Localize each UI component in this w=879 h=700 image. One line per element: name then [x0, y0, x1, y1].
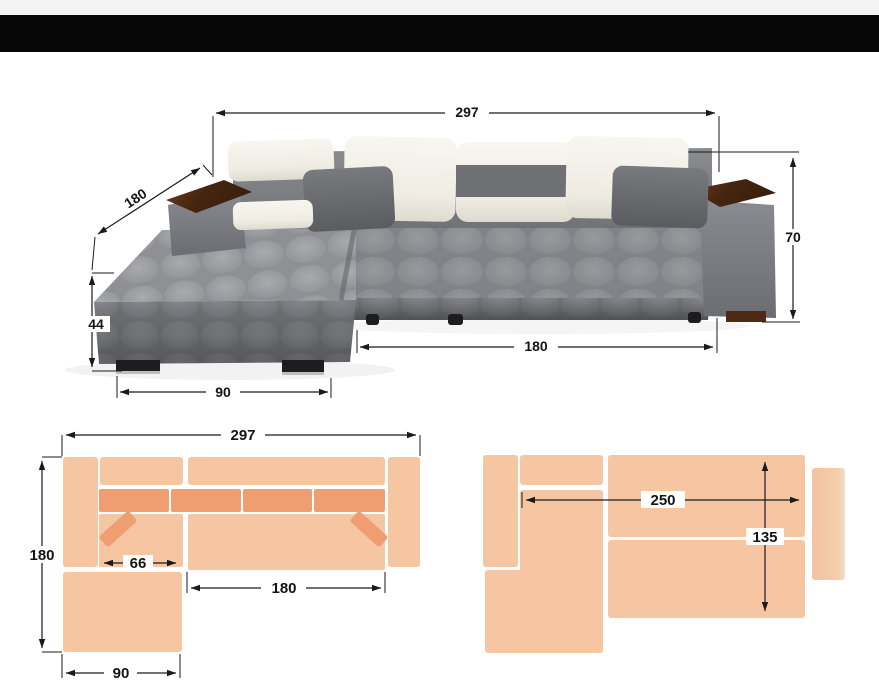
sofa-photo — [65, 136, 776, 380]
bed-panel-bottom — [608, 540, 805, 618]
dim-photo-depth-label: 180 — [121, 185, 149, 211]
sofa-foot — [688, 312, 701, 323]
dim-photo-ottoman-width-label: 90 — [215, 384, 231, 400]
right-armrest-body — [700, 200, 776, 318]
screenshot-root: 297 180 70 44 90 180 — [0, 0, 879, 700]
plan-backrest-left — [100, 457, 183, 485]
sofa-foot-wood — [726, 311, 766, 322]
dim-bed-depth-label: 135 — [752, 529, 777, 546]
dim-plan-ottoman-width-label: 90 — [113, 665, 130, 682]
bed-detached-armrest — [812, 468, 845, 580]
sofa-foot-plate — [116, 371, 160, 374]
bed-panel-top — [608, 455, 805, 537]
bed-left-armrest — [483, 455, 518, 567]
floorplan-bed-view — [483, 455, 845, 653]
dim-photo-seat-length-label: 180 — [524, 338, 548, 354]
lumbar-pillow-white — [233, 200, 314, 231]
plan-seat-strip-segment — [243, 489, 312, 512]
dim-plan-seat-length-label: 180 — [271, 580, 296, 597]
plan-left-armrest — [63, 457, 98, 567]
sofa-foot — [448, 314, 463, 325]
striped-pillow — [456, 142, 575, 222]
plan-seat-strip-segment — [171, 489, 241, 512]
sofa-foot — [282, 360, 324, 374]
plan-seat-strip-segment — [99, 489, 169, 512]
sofa-foot-plate — [282, 372, 324, 375]
plan-chaise — [63, 572, 182, 652]
dim-plan-width-label: 297 — [230, 427, 255, 444]
dim-photo-height-label: 70 — [785, 229, 801, 245]
plan-backrest-right — [188, 457, 385, 485]
bed-back-small — [520, 455, 603, 485]
chaise-front-shade — [94, 300, 356, 364]
dim-photo-width-label: 297 — [455, 104, 479, 120]
floorplan-top-view — [63, 457, 420, 652]
sofa-foot — [366, 314, 379, 325]
dim-photo-ottoman-height-label: 44 — [88, 316, 104, 332]
dim-bed-length-label: 250 — [650, 492, 675, 509]
dark-pillow — [611, 165, 709, 228]
bed-chaise — [485, 570, 603, 653]
plan-right-armrest — [388, 457, 420, 567]
dim-plan-depth-label: 180 — [29, 547, 54, 564]
plan-seat-strip-segment — [314, 489, 385, 512]
dim-plan-inner-width-label: 66 — [130, 555, 147, 572]
diagram-canvas: 297 180 70 44 90 180 — [0, 0, 879, 700]
seat-deck — [338, 228, 710, 300]
seat-front-shade — [338, 298, 710, 320]
floor-shadow — [330, 318, 750, 334]
dark-pillow — [302, 166, 395, 233]
